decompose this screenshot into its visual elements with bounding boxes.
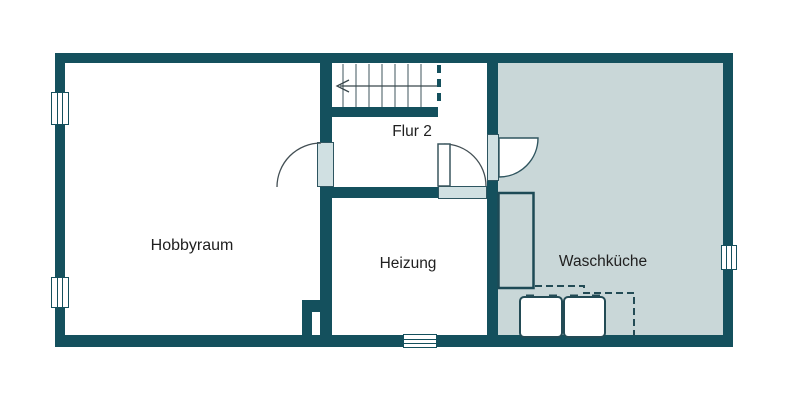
- door-swing-hobbyraum: [277, 143, 321, 187]
- door-leaf-heizung: [438, 144, 450, 186]
- room-label-hobbyraum: Hobbyraum: [130, 237, 254, 255]
- door-swing-waschkueche: [499, 138, 538, 177]
- washing-machines: [520, 295, 605, 338]
- machine-tick: [526, 295, 534, 299]
- machine-tick: [570, 295, 578, 299]
- washing-machine-1: [520, 297, 562, 337]
- stair-direction-arrow: [337, 80, 437, 92]
- floor-plan: Hobbyraum Flur 2 Heizung Waschküche: [0, 0, 786, 400]
- washing-machine-2: [564, 297, 605, 337]
- plan-details-layer: [0, 0, 786, 400]
- room-label-waschkueche: Waschküche: [553, 253, 653, 270]
- machine-tick: [592, 295, 600, 299]
- room-label-flur2: Flur 2: [379, 123, 445, 140]
- machine-tick: [549, 295, 557, 299]
- boiler-outline: [499, 193, 534, 288]
- room-label-heizung: Heizung: [368, 255, 448, 272]
